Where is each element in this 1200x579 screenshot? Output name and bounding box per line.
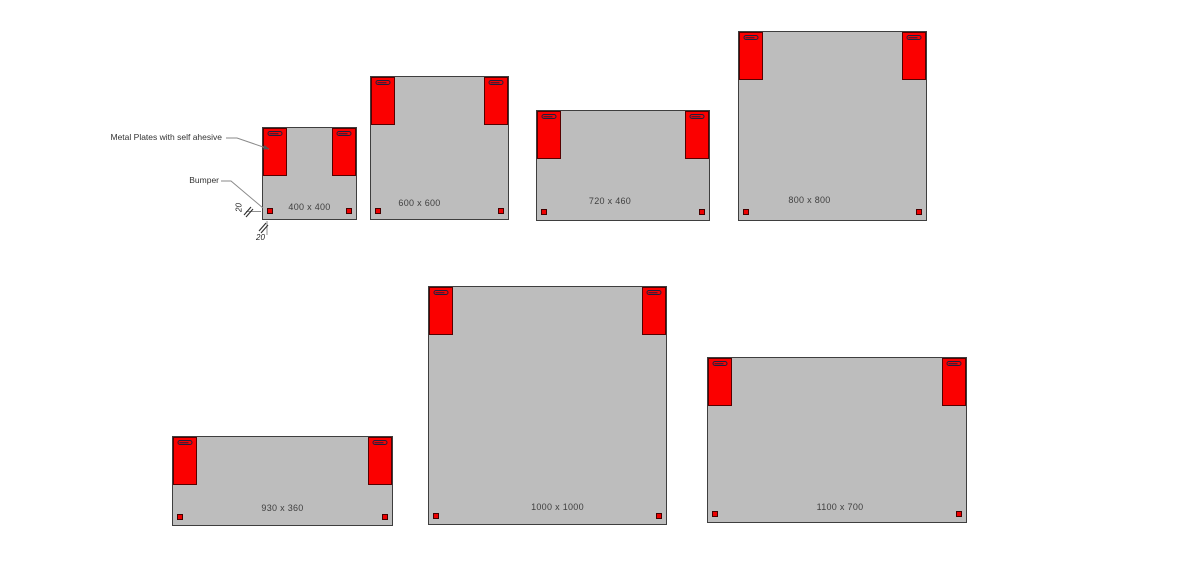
metal-plate-icon — [708, 358, 732, 406]
mounting-slot-icon — [907, 35, 922, 40]
bumper-annotation-label: Bumper — [170, 175, 219, 185]
panel-size-label: 1000 x 1000 — [531, 502, 584, 512]
dimension-label-vertical-20: 20 — [235, 202, 244, 214]
dimension-tick-icon — [246, 209, 253, 217]
metal-plate-icon — [642, 287, 666, 335]
metal-plate-icon — [685, 111, 709, 159]
metal-plate-icon — [902, 32, 926, 80]
bumper-icon — [375, 208, 381, 214]
bumper-icon — [699, 209, 705, 215]
panel-size-label: 720 x 460 — [589, 196, 631, 206]
panel-800x800: 800 x 800 — [738, 31, 927, 221]
mounting-slot-icon — [744, 35, 759, 40]
metal-plate-icon — [173, 437, 197, 485]
bumper-icon — [712, 511, 718, 517]
mounting-slot-icon — [690, 114, 705, 119]
dimension-tick-icon — [259, 223, 266, 231]
metal-plate-icon — [332, 128, 356, 176]
panel-600x600: 600 x 600 — [370, 76, 509, 220]
panel-size-label: 1100 x 700 — [817, 502, 864, 512]
metal-plate-icon — [537, 111, 561, 159]
dimension-tick-icon — [261, 225, 268, 233]
dimension-tick-icon — [244, 207, 251, 215]
bumper-icon — [346, 208, 352, 214]
bumper-icon — [267, 208, 273, 214]
bumper-icon — [656, 513, 662, 519]
panel-1000x1000: 1000 x 1000 — [428, 286, 667, 525]
mounting-slot-icon — [489, 80, 504, 85]
panel-720x460: 720 x 460 — [536, 110, 710, 221]
metal-plate-icon — [368, 437, 392, 485]
mounting-slot-icon — [373, 440, 388, 445]
panel-400x400: 400 x 400 — [262, 127, 357, 220]
dimension-label-horizontal-20: 20 — [256, 233, 265, 242]
mounting-slot-icon — [376, 80, 391, 85]
metal-plate-icon — [263, 128, 287, 176]
metal-plate-icon — [429, 287, 453, 335]
metal-plates-annotation-label: Metal Plates with self ahesive — [98, 132, 222, 142]
mounting-slot-icon — [947, 361, 962, 366]
bumper-icon — [541, 209, 547, 215]
bumper-icon — [956, 511, 962, 517]
metal-plate-icon — [484, 77, 508, 125]
panel-size-label: 400 x 400 — [288, 202, 330, 212]
mounting-slot-icon — [268, 131, 283, 136]
bumper-icon — [743, 209, 749, 215]
panel-size-label: 930 x 360 — [261, 503, 303, 513]
mounting-slot-icon — [178, 440, 193, 445]
metal-plate-icon — [942, 358, 966, 406]
mounting-slot-icon — [337, 131, 352, 136]
panel-size-label: 800 x 800 — [788, 195, 830, 205]
mounting-slot-icon — [647, 290, 662, 295]
mounting-slot-icon — [713, 361, 728, 366]
bumper-icon — [498, 208, 504, 214]
metal-plate-icon — [371, 77, 395, 125]
bumper-icon — [433, 513, 439, 519]
mounting-slot-icon — [434, 290, 449, 295]
mounting-slot-icon — [542, 114, 557, 119]
panel-1100x700: 1100 x 700 — [707, 357, 967, 523]
bumper-icon — [916, 209, 922, 215]
bumper-icon — [177, 514, 183, 520]
bumper-icon — [382, 514, 388, 520]
panel-size-label: 600 x 600 — [398, 198, 440, 208]
diagram-canvas: 400 x 400 600 x 600 720 x 460 — [0, 0, 1200, 579]
metal-plate-icon — [739, 32, 763, 80]
panel-930x360: 930 x 360 — [172, 436, 393, 526]
